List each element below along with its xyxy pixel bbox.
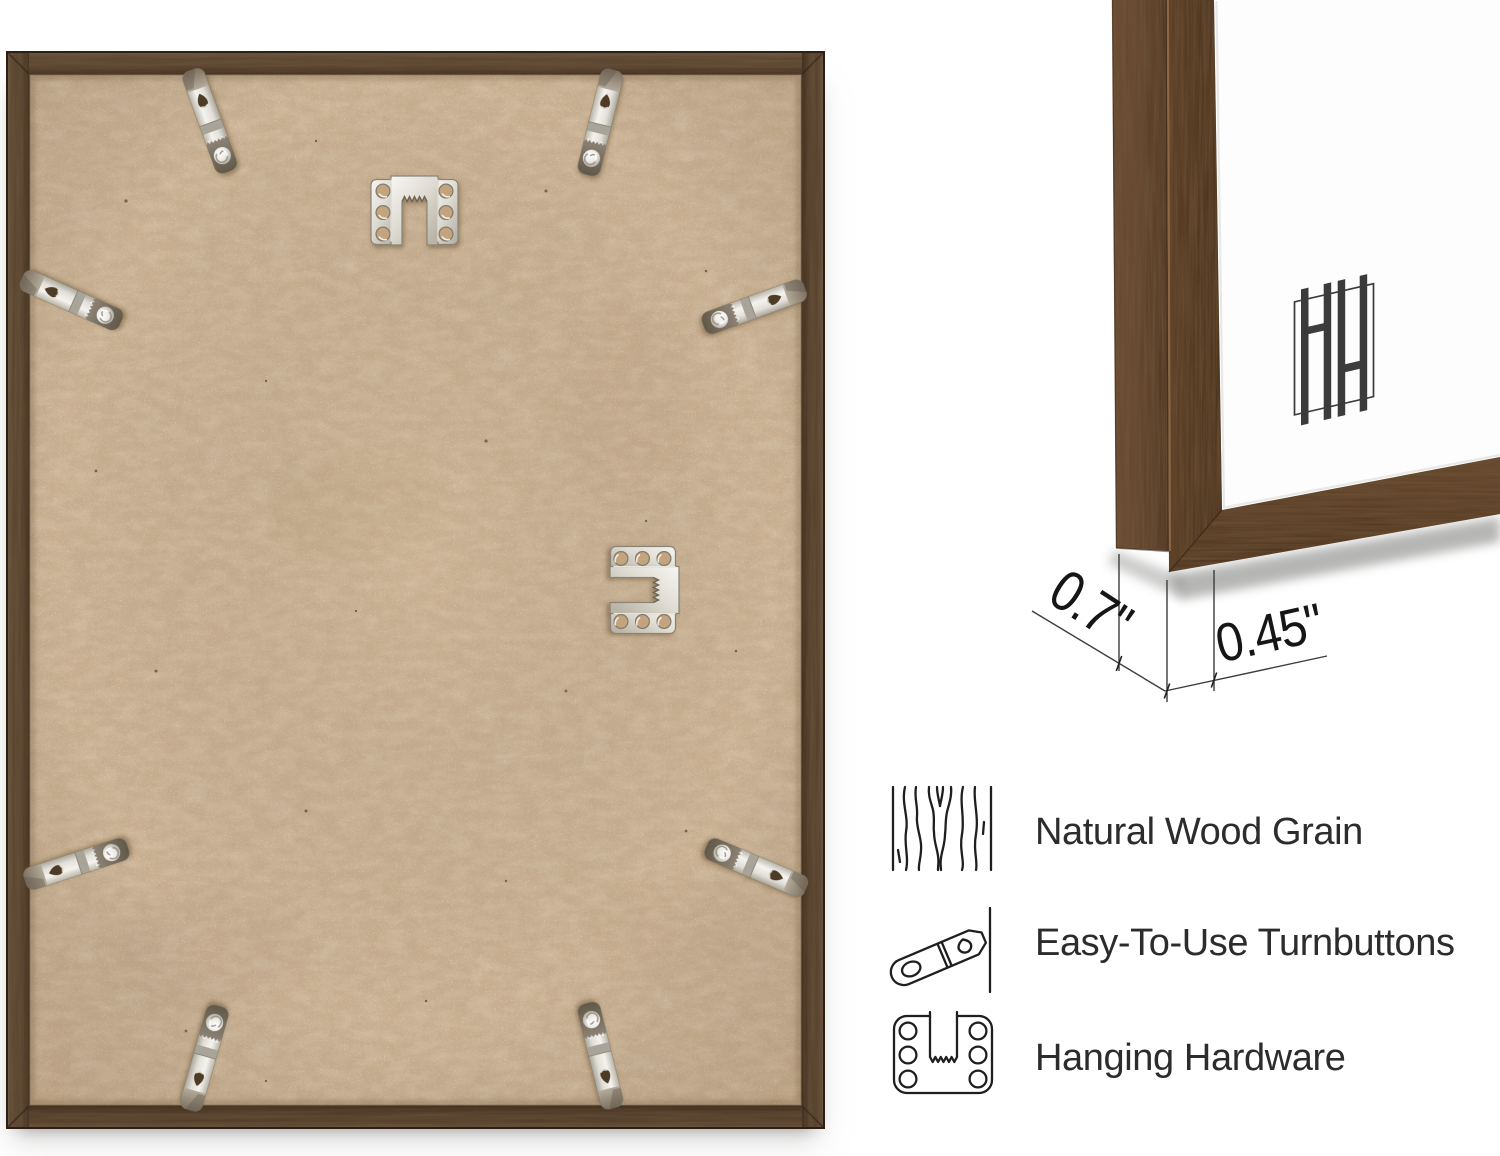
- svg-text:0.45": 0.45": [1210, 591, 1328, 674]
